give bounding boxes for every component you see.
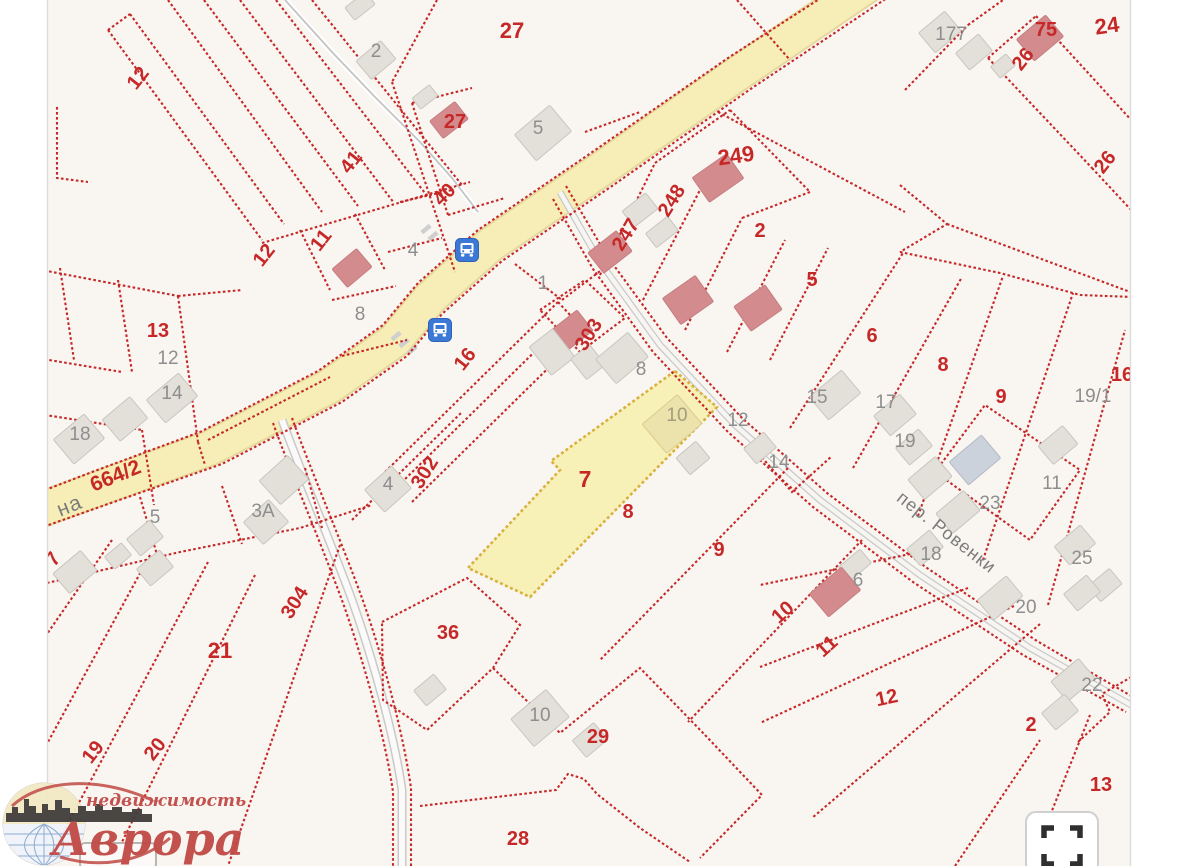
address-number-label: 5 [150,507,161,528]
parcel-number-label: 12 [874,685,900,711]
parcel-number-label: 5 [806,269,817,291]
address-number-label: 4 [408,240,419,261]
address-number-label: 5 [533,118,544,139]
parcel-number-label: 8 [622,501,633,523]
parcel-number-label: 249 [716,141,756,171]
address-number-label: 11 [1042,473,1062,494]
address-number-label: 12 [727,410,748,431]
parcel-number-label: 13 [1090,774,1112,796]
parcel-number-label: 8 [937,354,948,376]
watermark-logo: недвижимость Аврора [3,783,246,866]
parcel-number-label: 2 [754,220,765,242]
address-number-label: 4 [383,474,394,495]
address-number-label: 3А [251,501,275,522]
address-number-label: 14 [161,383,183,404]
address-number-label: 1 [538,273,549,294]
parcel-number-label: 36 [437,622,459,644]
parcel-number-label: 13 [147,320,169,342]
parcel-number-label: 9 [995,386,1006,408]
address-number-label: 18 [920,544,941,565]
parcel-number-label: 6 [866,325,877,347]
left-margin [0,0,47,866]
parcel-number-label: 2 [1025,714,1036,736]
address-number-label: 8 [636,359,647,380]
address-number-label: 19/1 [1075,386,1112,407]
address-number-label: 19 [894,431,915,452]
address-number-label: 22 [1081,675,1102,696]
parcel-number-label: 9 [713,539,724,561]
parcel-number-label: 21 [208,638,232,663]
address-number-label: 15 [806,387,827,408]
address-number-label: 10 [666,405,687,426]
address-number-label: 20 [1015,597,1036,618]
map-viewport[interactable]: 1241111227274024924824725689247526261366… [0,0,1179,866]
right-margin [1131,0,1179,866]
address-number-label: 10 [529,705,550,726]
bus-stop-icon[interactable] [456,239,479,262]
parcel-number-label: 16 [1111,364,1133,386]
logo-brand: Аврора [49,812,245,866]
bus-stop-icon[interactable] [429,319,452,342]
address-number-label: 2 [371,41,382,62]
address-number-label: 17 [875,392,896,413]
parcel-number-label: 75 [1035,19,1057,41]
address-number-label: 8 [355,304,366,325]
parcel-number-label: 27 [500,18,524,43]
address-number-label: 14 [768,452,790,473]
address-number-label: 25 [1071,548,1092,569]
parcel-number-label: 7 [579,466,592,492]
logo-tagline: недвижимость [86,791,246,811]
cadastral-map[interactable]: 1241111227274024924824725689247526261366… [0,0,1179,866]
address-number-label: 18 [69,424,90,445]
parcel-number-label: 28 [507,828,529,850]
address-number-label: 23 [979,493,1000,514]
parcel-number-label: 27 [444,111,466,133]
address-number-label: 6 [853,570,864,591]
address-number-label: 177 [935,24,967,45]
parcel-number-label: 24 [1093,11,1121,39]
address-number-label: 12 [157,348,178,369]
fullscreen-button[interactable] [1026,812,1098,866]
parcel-number-label: 29 [587,726,609,748]
